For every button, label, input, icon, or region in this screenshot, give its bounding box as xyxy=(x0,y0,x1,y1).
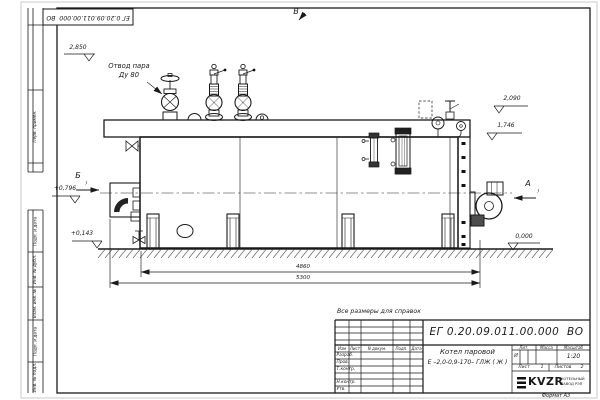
drawing-sheet: ЕГ 0.20.09.011.00.000 ВО Перв. примен. П… xyxy=(0,0,600,400)
dimension-4860: 4860 xyxy=(287,265,319,271)
tb-lit-value: И xyxy=(512,354,520,359)
tb-header-data: Дата xyxy=(410,347,423,351)
view-label-a: А xyxy=(522,180,534,188)
elevation-0143: +0,143 xyxy=(66,231,98,237)
dimension-5300: 5300 xyxy=(287,276,319,282)
view-label-v: В xyxy=(290,8,302,16)
tb-row-tkontr: Т.контр. xyxy=(337,368,356,372)
tb-header-izm: Изм xyxy=(335,347,349,351)
tb-sheet-label: Лист xyxy=(513,366,535,371)
tb-row-razrab: Разраб. xyxy=(337,354,354,358)
view-label-b: Б xyxy=(72,172,84,180)
margin-label-podp-data-1: Подп. и дата xyxy=(28,210,43,252)
tb-row-utv: Утв. xyxy=(337,388,346,392)
margin-label-inv-podl: Инв. № подл. xyxy=(28,362,43,393)
tb-header-ndoc: N докум. xyxy=(361,347,393,351)
tb-sheets-value: 2 xyxy=(577,366,587,371)
corner-stamp-doc-number: ЕГ 0.20.09.011.00.000 ВО xyxy=(43,9,133,25)
tb-lit-label: Лит. xyxy=(512,346,536,350)
kvzr-logo-text: KVZR xyxy=(528,376,563,387)
tb-doc-number: ЕГ 0.20.09.011.00.000 ВО xyxy=(423,320,590,345)
tb-row-prov: Пров. xyxy=(337,361,350,365)
tb-sheet-value: 1 xyxy=(537,366,547,371)
reference-note: Все размеры для справок xyxy=(337,309,421,315)
margin-label-vzam-inv: Взам. инв. № xyxy=(28,287,43,320)
tb-header-podp: Подп. xyxy=(393,347,410,351)
elevation-0000: 0,000 xyxy=(508,234,540,240)
steam-outlet-label-line1: Отвод пара xyxy=(101,63,157,70)
margin-label-perv-primen: Перв. примен. xyxy=(28,90,43,163)
tb-scale-value: 1:20 xyxy=(557,354,590,360)
margin-label-podp-data-2: Подп. и дата xyxy=(28,320,43,362)
elevation-0796: +0,796 xyxy=(49,186,81,192)
elevation-1746: 1,746 xyxy=(490,123,522,129)
tb-mass-label: Масса xyxy=(536,346,557,350)
format-label: Формат А3 xyxy=(536,394,576,399)
tb-header-list: Лист xyxy=(349,347,361,351)
ground-line xyxy=(98,249,553,258)
margin-label-inv-dubl: Инв. № дубл. xyxy=(28,252,43,287)
elevation-2850: 2,850 xyxy=(63,45,93,51)
tb-name-line2: Е –2,0-0,9-170– ГЛЖ ( Ж ) xyxy=(423,360,512,366)
kvzr-logo-sub2: ЗАВОД РЭП xyxy=(561,383,582,387)
elevation-2090: 2,090 xyxy=(496,96,528,102)
tb-name-line1: Котел паровой xyxy=(423,349,512,356)
steam-outlet-label-line2: Ду 80 xyxy=(101,72,157,79)
tb-row-nkontr: Н.контр. xyxy=(337,381,356,385)
tb-sheets-label: Листов xyxy=(550,366,576,371)
kvzr-logo-icon xyxy=(517,377,526,389)
tb-scale-label: Масштаб xyxy=(557,346,590,350)
